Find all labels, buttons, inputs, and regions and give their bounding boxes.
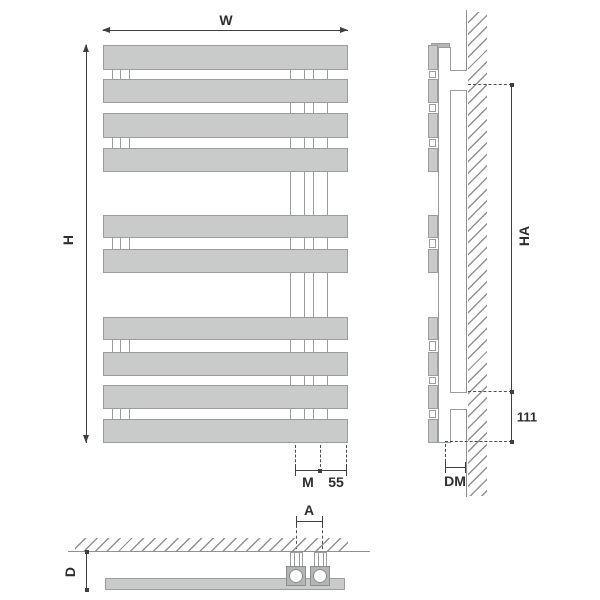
riser-tube xyxy=(304,172,305,215)
connector-tube xyxy=(290,103,291,113)
arrow-right-icon xyxy=(340,27,348,33)
riser-tube xyxy=(313,273,314,317)
radiator-panel-side xyxy=(428,79,438,103)
radiator-panel-side xyxy=(428,45,438,70)
dim-tick xyxy=(465,462,466,473)
radiator-panel-front xyxy=(103,113,348,138)
radiator-panel-front xyxy=(103,45,348,70)
radiator-panel-front xyxy=(103,79,348,103)
connector-tube xyxy=(129,138,130,148)
arrow-left-icon xyxy=(102,27,110,33)
spacing-55-label: 55 xyxy=(328,475,344,489)
ha-extension-mid xyxy=(468,391,512,392)
height-label: H xyxy=(61,235,75,245)
dim-dot xyxy=(318,469,322,473)
connector-tube xyxy=(304,138,305,148)
connector-tube xyxy=(327,409,328,419)
radiator-panel-side xyxy=(428,249,438,273)
radiator-panel-front xyxy=(103,215,348,238)
riser-tube xyxy=(290,172,291,215)
radiator-panel-side xyxy=(428,113,438,138)
radiator-panel-front xyxy=(103,249,348,273)
connector-tube xyxy=(327,238,328,249)
collector-stub xyxy=(429,341,436,351)
radiator-panel-front xyxy=(103,148,348,172)
dim-tick xyxy=(445,462,446,473)
arrow-up-icon xyxy=(83,44,89,52)
riser-tube xyxy=(290,273,291,317)
connector-tube xyxy=(112,238,113,249)
ha-extension-bottom xyxy=(445,441,512,442)
radiator-panel-side xyxy=(428,385,438,409)
connector-tube xyxy=(313,238,314,249)
connector-tube xyxy=(129,70,130,79)
connector-tube xyxy=(304,409,305,419)
connector-tube xyxy=(327,340,328,352)
connector-tube xyxy=(120,238,121,249)
width-label: W xyxy=(219,13,232,27)
dm-label: DM xyxy=(444,474,466,488)
riser-tube xyxy=(327,273,328,317)
bottom-clearance-label: 111 xyxy=(517,411,537,424)
collector-stub xyxy=(429,104,436,112)
radiator-panel-front xyxy=(103,385,348,409)
collector-stub xyxy=(429,71,436,78)
collector-stub xyxy=(429,239,436,248)
ha-label: HA xyxy=(517,226,531,246)
connector-tube xyxy=(120,70,121,79)
connector-tube xyxy=(304,376,305,385)
pipe-stub-inner xyxy=(294,552,295,567)
collector-stub xyxy=(429,377,436,384)
radiator-panel-side xyxy=(428,419,438,443)
pipe-stub-right xyxy=(314,552,327,567)
m-extension-line xyxy=(295,445,296,467)
connector-tube xyxy=(112,138,113,148)
collector-column xyxy=(438,47,451,443)
connector-tube xyxy=(290,238,291,249)
m-label: M xyxy=(302,475,314,489)
panel-top-view xyxy=(105,578,345,590)
connector-tube xyxy=(120,340,121,352)
connector-tube xyxy=(313,409,314,419)
mounting-bracket-bottom xyxy=(450,392,467,410)
connector-tube xyxy=(313,138,314,148)
m-extension-line xyxy=(320,445,321,467)
depth-label: D xyxy=(63,567,77,577)
connector-tube xyxy=(112,340,113,352)
connector-tube xyxy=(304,103,305,113)
connector-tube xyxy=(327,138,328,148)
a-dimension-line xyxy=(296,521,322,522)
valve-union-right xyxy=(313,569,327,583)
pipe-stub-inner xyxy=(318,552,319,567)
valve-union-left xyxy=(289,569,303,583)
width-dimension-line xyxy=(103,30,348,31)
radiator-panel-side xyxy=(428,317,438,340)
radiator-panel-side xyxy=(428,148,438,172)
connector-tube xyxy=(304,70,305,79)
dim-tick xyxy=(295,465,296,476)
connector-tube xyxy=(313,376,314,385)
mounting-bracket-top xyxy=(450,70,467,91)
connector-tube xyxy=(327,103,328,113)
collector-stub xyxy=(429,139,436,147)
pipe-stub-left xyxy=(290,552,303,567)
connector-tube xyxy=(290,376,291,385)
collector-stub xyxy=(429,410,436,418)
height-dimension-line xyxy=(86,45,87,443)
connector-tube xyxy=(129,340,130,352)
connector-tube xyxy=(313,340,314,352)
ha-dimension-line xyxy=(511,85,512,442)
connector-tube xyxy=(112,409,113,419)
radiator-panel-front xyxy=(103,317,348,340)
d-dimension-line xyxy=(86,552,87,590)
pipe-stub-inner xyxy=(299,552,300,567)
radiator-panel-front xyxy=(103,352,348,376)
riser-tube xyxy=(327,172,328,215)
pipe-stub-inner xyxy=(323,552,324,567)
ha-extension-top xyxy=(468,84,512,85)
radiator-panel-side xyxy=(428,352,438,376)
connector-tube xyxy=(112,70,113,79)
connector-tube xyxy=(290,70,291,79)
m-extension-line xyxy=(346,445,347,467)
dim-dot xyxy=(510,83,514,87)
dim-tick xyxy=(346,465,347,476)
riser-tube xyxy=(313,172,314,215)
riser-tube xyxy=(304,273,305,317)
dim-dot xyxy=(85,588,89,592)
connector-tube xyxy=(304,238,305,249)
connector-tube xyxy=(313,70,314,79)
connector-tube xyxy=(327,376,328,385)
connector-tube xyxy=(304,340,305,352)
radiator-panel-front xyxy=(103,419,348,443)
connector-tube xyxy=(120,409,121,419)
radiator-technical-drawing: W H M 55 xyxy=(0,0,600,600)
arrow-down-icon xyxy=(83,435,89,443)
wall-hatch-plan xyxy=(75,538,348,551)
pipe-spacing-label: A xyxy=(304,503,314,517)
connector-tube xyxy=(120,138,121,148)
dim-dot xyxy=(510,390,514,394)
connector-tube xyxy=(290,138,291,148)
connector-tube xyxy=(129,238,130,249)
radiator-panel-side xyxy=(428,215,438,238)
dim-dot xyxy=(85,550,89,554)
connector-tube xyxy=(129,409,130,419)
dim-dot xyxy=(510,440,514,444)
connector-tube xyxy=(290,340,291,352)
connector-tube xyxy=(290,409,291,419)
connector-tube xyxy=(313,103,314,113)
connector-tube xyxy=(327,70,328,79)
dm-dimension-line xyxy=(445,467,466,468)
